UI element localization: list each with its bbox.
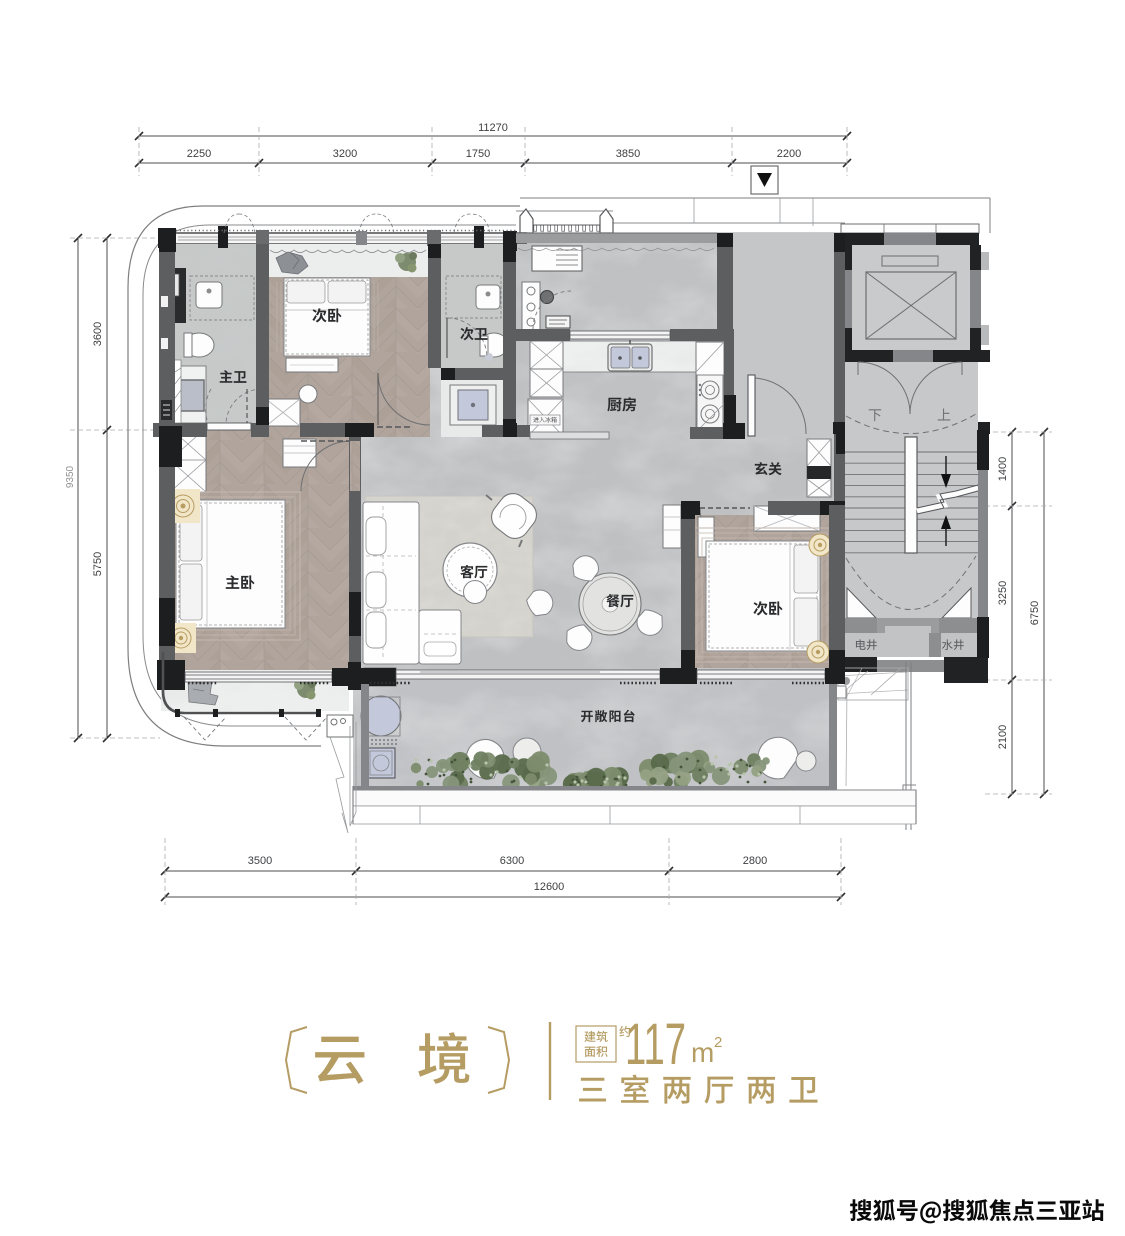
svg-text:3200: 3200 (333, 148, 357, 160)
svg-text:3600: 3600 (92, 322, 104, 346)
svg-text:2200: 2200 (777, 148, 801, 160)
svg-text:5750: 5750 (92, 552, 104, 576)
svg-text:3500: 3500 (248, 855, 272, 867)
svg-text:2800: 2800 (743, 855, 767, 867)
svg-text:1400: 1400 (997, 457, 1009, 481)
svg-text:2250: 2250 (187, 148, 211, 160)
svg-text:9350: 9350 (65, 465, 76, 488)
svg-text:3250: 3250 (997, 581, 1009, 605)
svg-text:11270: 11270 (478, 122, 508, 134)
svg-text:1750: 1750 (466, 148, 490, 160)
svg-text:6300: 6300 (500, 855, 524, 867)
svg-text:2: 2 (714, 1034, 722, 1051)
svg-text:2100: 2100 (997, 725, 1009, 749)
svg-text:m: m (691, 1037, 714, 1068)
svg-text:6750: 6750 (1029, 601, 1041, 625)
svg-text:12600: 12600 (534, 881, 565, 893)
svg-text:3850: 3850 (616, 148, 640, 160)
svg-text:117: 117 (625, 1013, 686, 1077)
